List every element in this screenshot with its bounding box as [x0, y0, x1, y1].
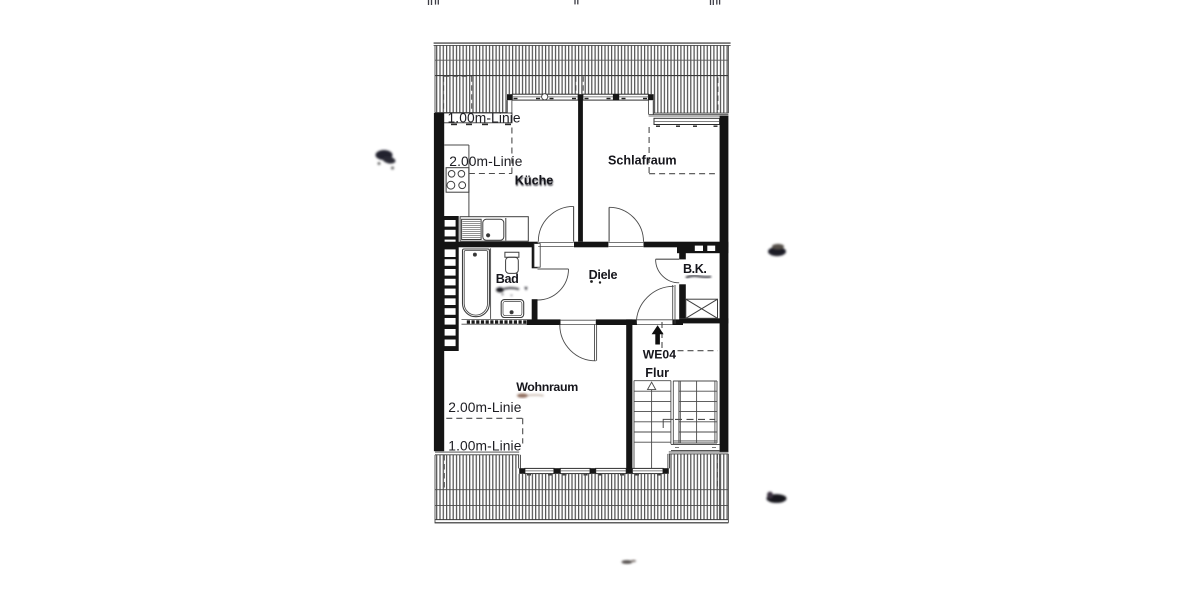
- svg-text:1.00m-Linie: 1.00m-Linie: [448, 111, 521, 126]
- svg-text:Schlafraum: Schlafraum: [608, 154, 677, 168]
- svg-text:Flur: Flur: [645, 366, 669, 380]
- svg-text:2.00m-Linie: 2.00m-Linie: [448, 400, 521, 415]
- svg-text:Bad: Bad: [496, 272, 519, 286]
- svg-text:2.00m-Linie: 2.00m-Linie: [449, 154, 522, 169]
- svg-text:WE04: WE04: [643, 347, 676, 361]
- svg-text:Wohnraum: Wohnraum: [516, 380, 578, 394]
- svg-text:1.00m-Linie: 1.00m-Linie: [448, 439, 521, 454]
- svg-text:Diele: Diele: [589, 268, 618, 282]
- svg-text:Küche: Küche: [515, 174, 554, 188]
- svg-text:B.K.: B.K.: [683, 262, 706, 276]
